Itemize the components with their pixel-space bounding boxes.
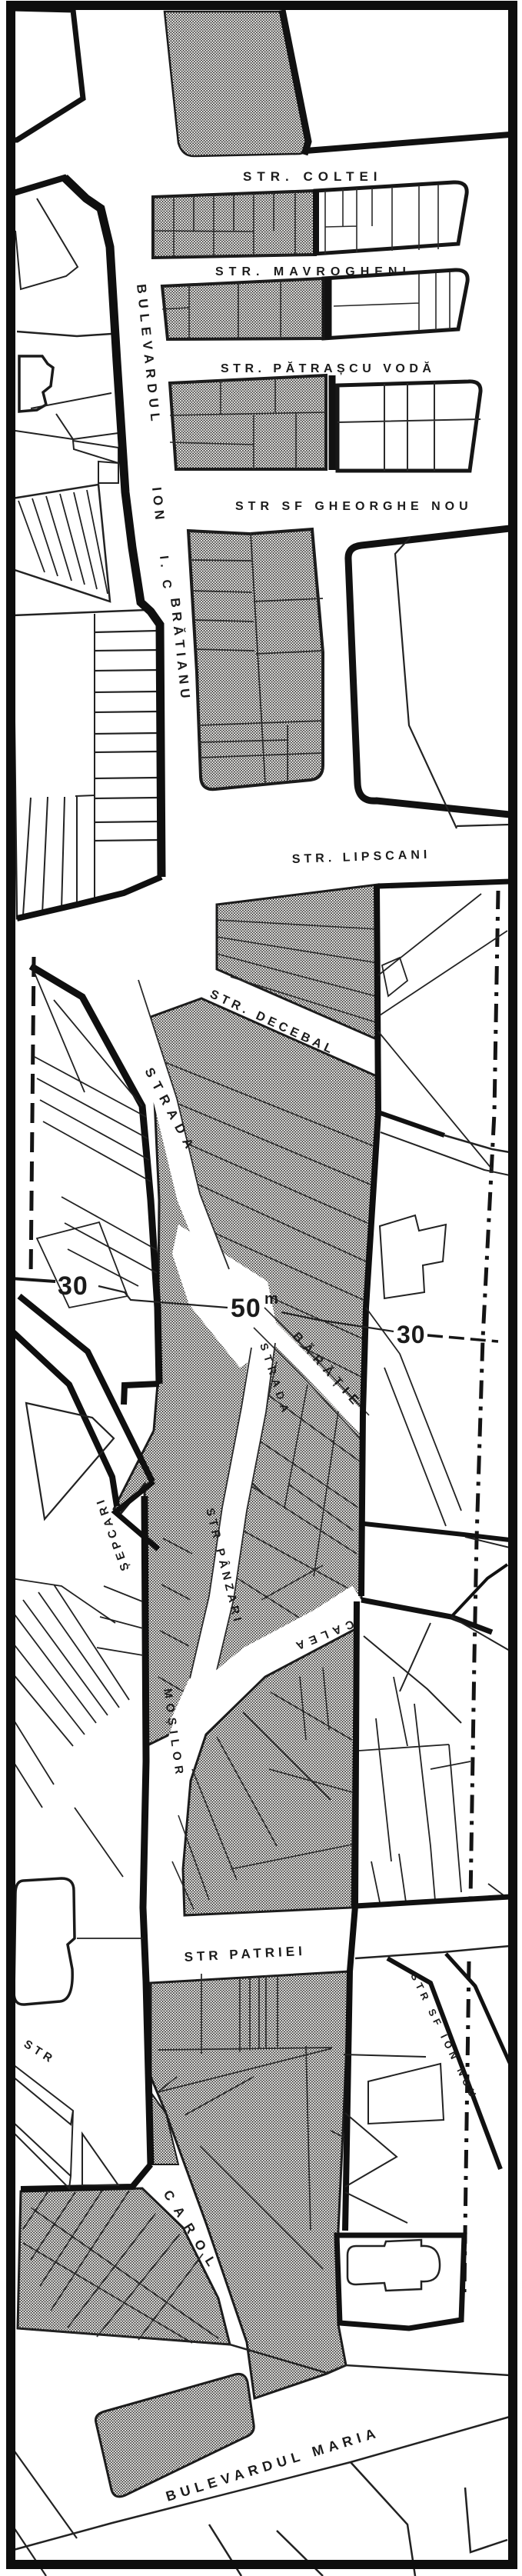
svg-text:30: 30: [397, 1321, 426, 1348]
svg-text:30: 30: [58, 1271, 88, 1301]
svg-text:50: 50: [231, 1294, 261, 1323]
svg-text:STR. COLTEI: STR. COLTEI: [243, 169, 383, 184]
svg-text:STR. PĂTRAȘCU VODĂ: STR. PĂTRAȘCU VODĂ: [221, 361, 435, 375]
svg-text:m: m: [264, 1291, 278, 1308]
svg-text:STR SF GHEORGHE NOU: STR SF GHEORGHE NOU: [235, 500, 473, 513]
